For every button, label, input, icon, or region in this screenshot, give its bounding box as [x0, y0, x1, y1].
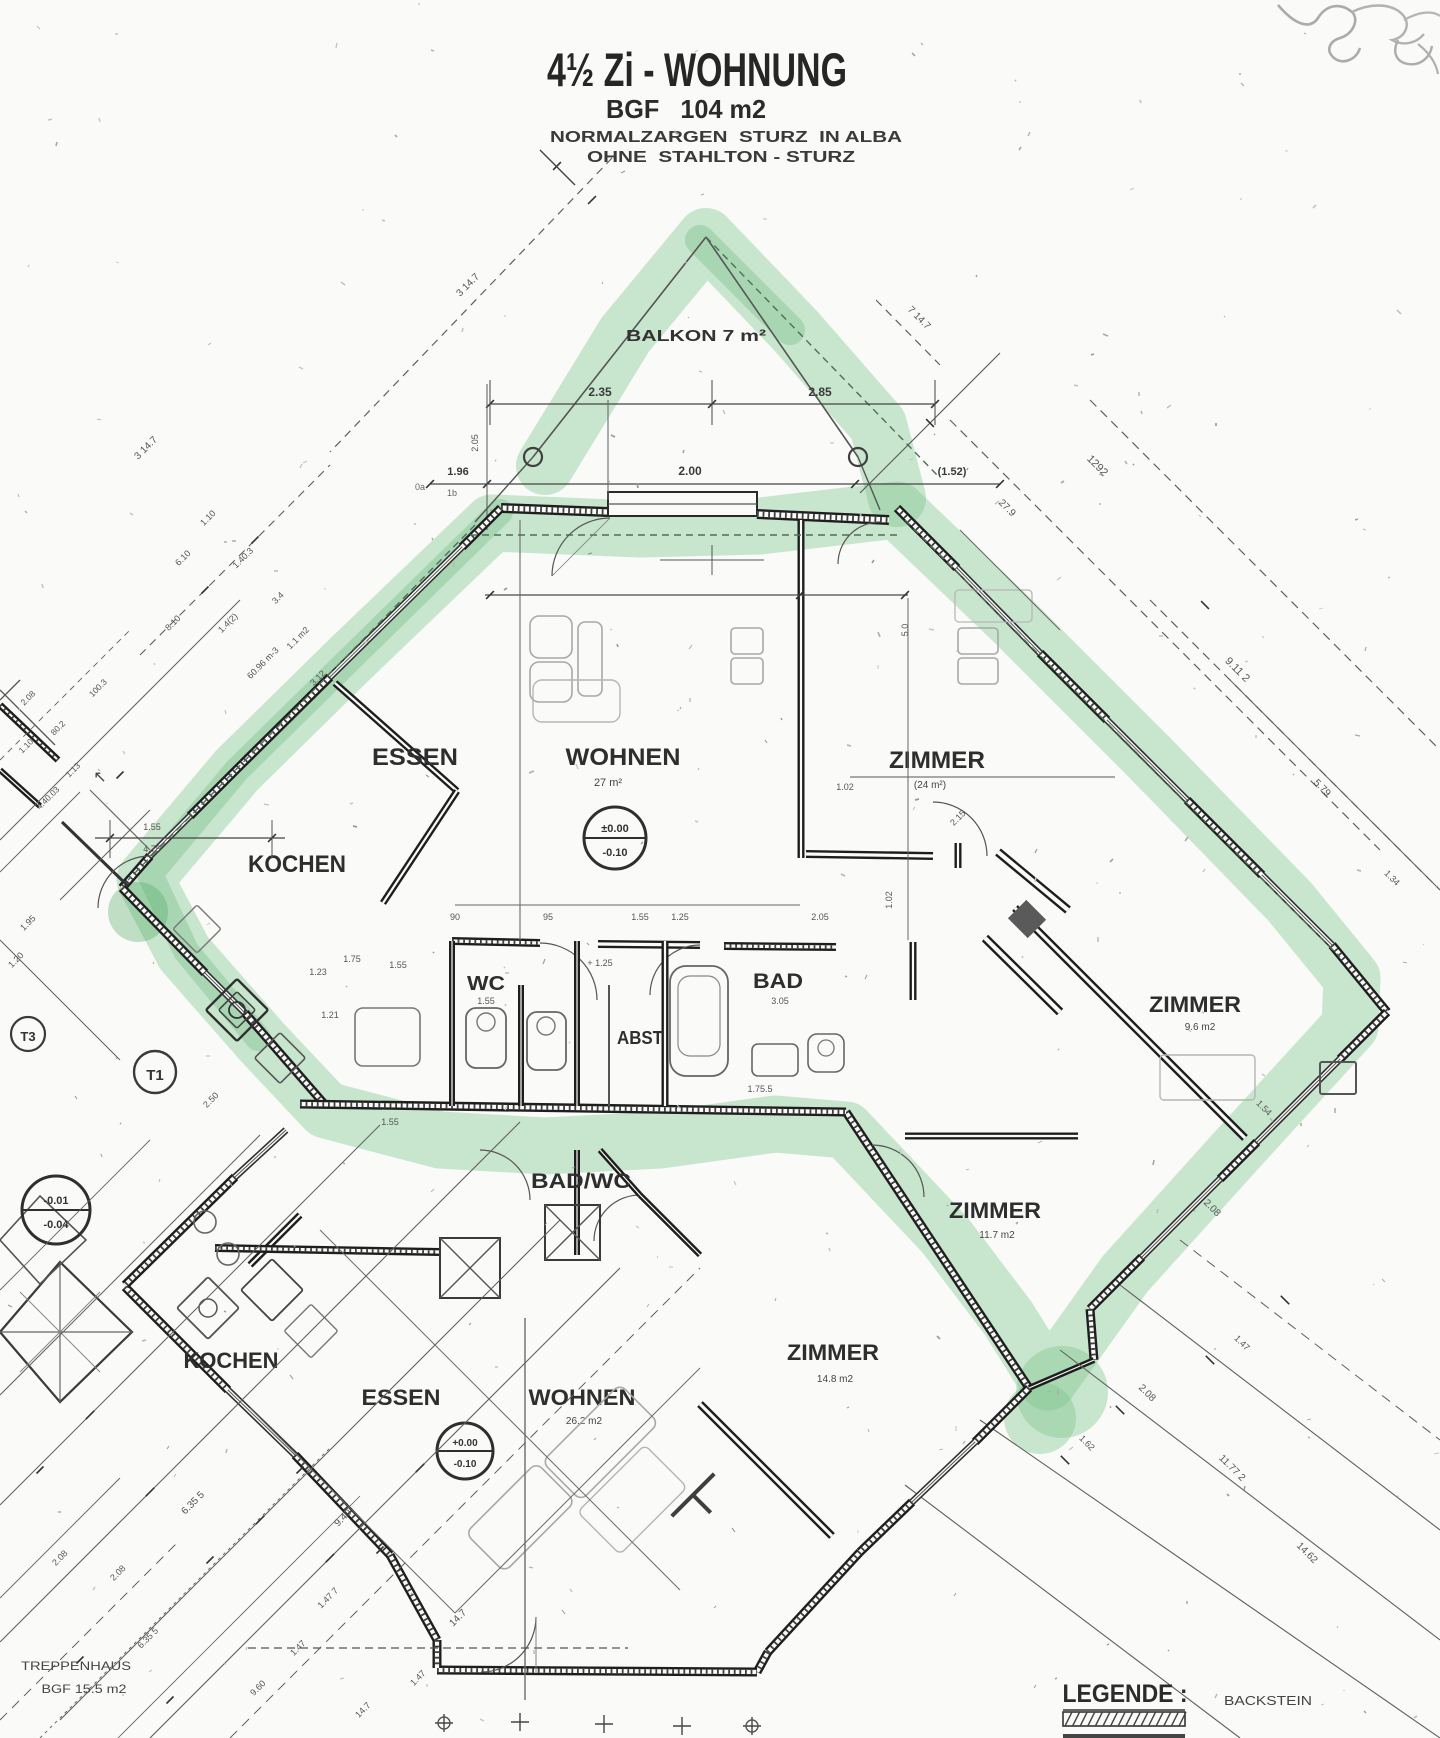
- svg-text:-0.01: -0.01: [43, 1195, 68, 1207]
- svg-text:(24 m²): (24 m²): [914, 780, 946, 791]
- svg-text:+ 1.25: + 1.25: [587, 958, 612, 968]
- svg-text:BALKON 7 m²: BALKON 7 m²: [626, 328, 766, 345]
- svg-text:90: 90: [450, 912, 460, 922]
- svg-text:1.55: 1.55: [381, 1117, 399, 1127]
- svg-text:1.55: 1.55: [389, 960, 407, 970]
- svg-text:ZIMMER: ZIMMER: [1149, 992, 1241, 1017]
- svg-text:ABST: ABST: [617, 1028, 663, 1048]
- svg-text:95: 95: [543, 912, 553, 922]
- svg-text:T3: T3: [20, 1029, 35, 1044]
- svg-text:TREPPENHAUS: TREPPENHAUS: [21, 1659, 131, 1673]
- svg-text:BGF 15.5 m2: BGF 15.5 m2: [42, 1682, 127, 1696]
- svg-text:LEGENDE :: LEGENDE :: [1063, 1680, 1188, 1708]
- svg-text:WOHNEN: WOHNEN: [566, 744, 681, 771]
- svg-text:2.05: 2.05: [811, 912, 829, 922]
- svg-text:1.96: 1.96: [447, 466, 468, 478]
- svg-text:WOHNEN: WOHNEN: [529, 1385, 636, 1410]
- svg-text:3.05: 3.05: [771, 996, 789, 1006]
- svg-text:ESSEN: ESSEN: [372, 744, 458, 771]
- svg-text:OHNE STAHLTON - STURZ: OHNE STAHLTON - STURZ: [587, 149, 855, 166]
- svg-text:1.02: 1.02: [836, 782, 854, 792]
- svg-text:ZIMMER: ZIMMER: [787, 1340, 879, 1365]
- svg-text:9.6 m2: 9.6 m2: [1185, 1022, 1216, 1033]
- svg-text:1.23: 1.23: [309, 967, 327, 977]
- svg-text:26.2 m2: 26.2 m2: [566, 1416, 603, 1427]
- svg-text:KOCHEN: KOCHEN: [184, 1348, 279, 1373]
- svg-text:(1.52): (1.52): [938, 466, 967, 478]
- svg-text:1.55: 1.55: [477, 996, 495, 1006]
- svg-text:1.02: 1.02: [884, 891, 894, 909]
- svg-text:14.8 m2: 14.8 m2: [817, 1374, 854, 1385]
- svg-text:BGF 104 m2: BGF 104 m2: [606, 94, 766, 124]
- svg-text:ZIMMER: ZIMMER: [949, 1198, 1041, 1223]
- svg-text:T1: T1: [146, 1067, 164, 1084]
- svg-text:1.55: 1.55: [631, 912, 649, 922]
- svg-text:2.85: 2.85: [808, 385, 832, 399]
- svg-text:+0.00: +0.00: [452, 1438, 478, 1449]
- svg-text:BAD/WC: BAD/WC: [531, 1170, 631, 1193]
- svg-text:1b: 1b: [447, 488, 457, 498]
- svg-text:WC: WC: [467, 973, 505, 995]
- svg-text:11.7 m2: 11.7 m2: [979, 1230, 1015, 1241]
- svg-text:2.35: 2.35: [588, 385, 612, 399]
- svg-text:1.25: 1.25: [671, 912, 689, 922]
- svg-text:1.75: 1.75: [343, 954, 361, 964]
- svg-text:NORMALZARGEN STURZ IN ALBA: NORMALZARGEN STURZ IN ALBA: [550, 129, 903, 146]
- svg-text:0a: 0a: [415, 482, 425, 492]
- svg-text:1.21: 1.21: [321, 1010, 339, 1020]
- svg-text:KOCHEN: KOCHEN: [248, 851, 346, 878]
- svg-text:1.55: 1.55: [143, 822, 161, 832]
- svg-text:BACKSTEIN: BACKSTEIN: [1224, 1693, 1312, 1708]
- svg-text:-0.10: -0.10: [602, 847, 627, 859]
- svg-text:ZIMMER: ZIMMER: [889, 747, 985, 774]
- svg-text:BAD: BAD: [753, 970, 803, 993]
- svg-text:2.05: 2.05: [470, 434, 480, 452]
- svg-text:±0.00: ±0.00: [601, 823, 628, 835]
- svg-text:-0.10: -0.10: [454, 1459, 477, 1470]
- svg-text:4.75: 4.75: [143, 844, 161, 854]
- svg-text:1.75.5: 1.75.5: [747, 1084, 772, 1094]
- svg-text:2.00: 2.00: [678, 464, 702, 478]
- svg-text:27 m²: 27 m²: [594, 777, 622, 789]
- svg-text:↖: ↖: [93, 769, 106, 786]
